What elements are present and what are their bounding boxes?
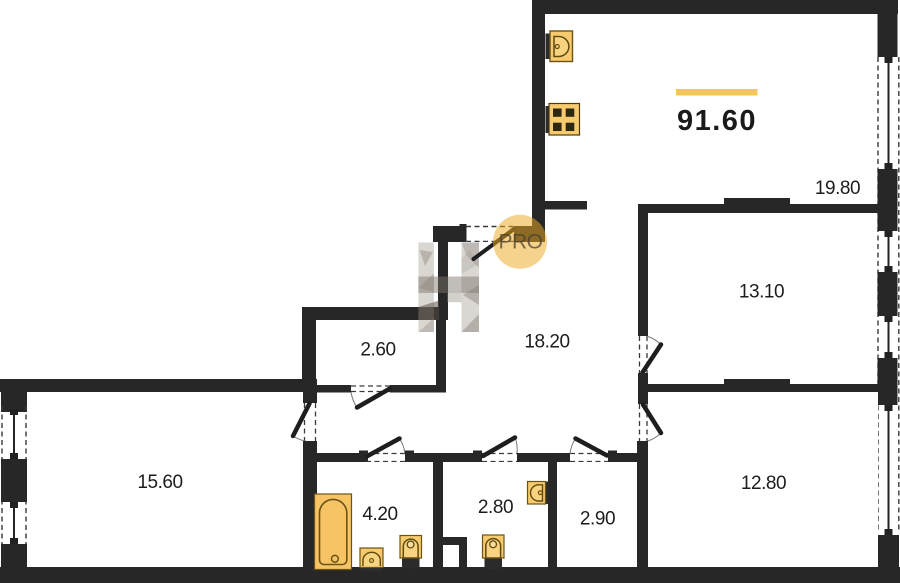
svg-text:91.60: 91.60 <box>677 105 757 137</box>
svg-text:19.80: 19.80 <box>815 178 860 199</box>
svg-text:2.90: 2.90 <box>580 509 615 530</box>
svg-text:2.80: 2.80 <box>478 497 513 518</box>
svg-text:15.60: 15.60 <box>137 472 182 493</box>
svg-text:18.20: 18.20 <box>524 332 569 353</box>
svg-text:13.10: 13.10 <box>739 282 784 303</box>
svg-text:2.60: 2.60 <box>360 340 395 361</box>
svg-text:12.80: 12.80 <box>741 473 786 494</box>
svg-text:4.20: 4.20 <box>362 504 397 525</box>
svg-text:PRO: PRO <box>498 231 542 254</box>
